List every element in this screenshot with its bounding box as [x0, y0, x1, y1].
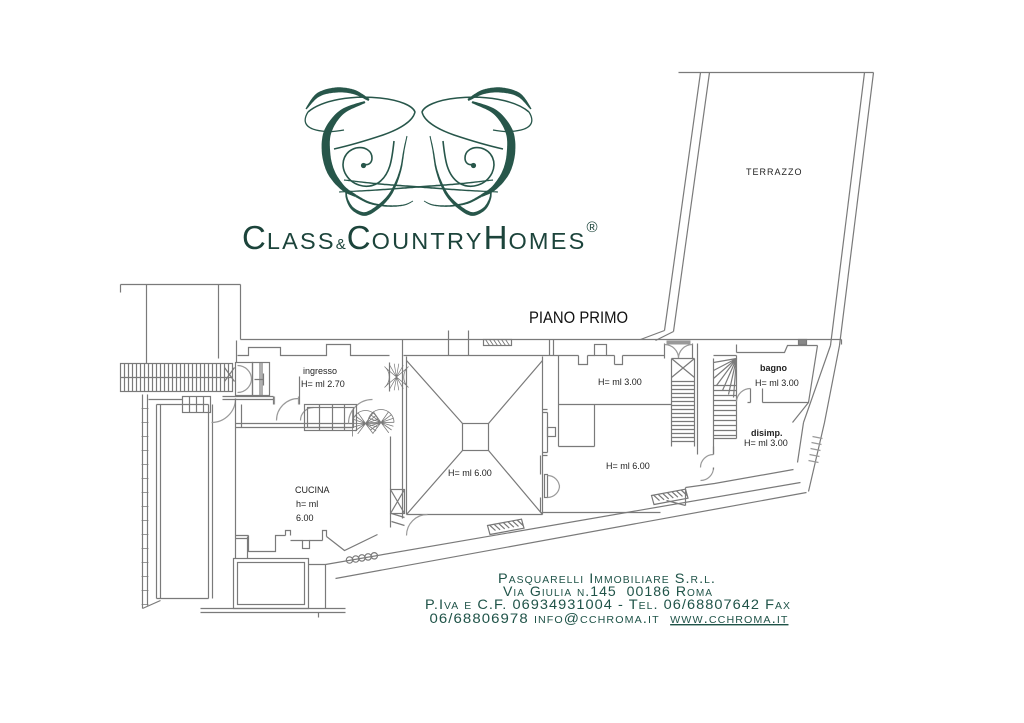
- svg-text:CUCINA: CUCINA: [295, 485, 330, 495]
- svg-text:H= ml 6.00: H= ml 6.00: [448, 468, 492, 478]
- svg-text:bagno: bagno: [760, 363, 787, 373]
- svg-text:TERRAZZO: TERRAZZO: [746, 167, 803, 177]
- svg-text:H= ml 3.00: H= ml 3.00: [744, 438, 788, 448]
- svg-text:6.00: 6.00: [296, 513, 314, 523]
- svg-text:CLASS&COUNTRYHOMES®: CLASS&COUNTRYHOMES®: [242, 219, 599, 256]
- svg-text:H= ml 3.00: H= ml 3.00: [755, 378, 799, 388]
- svg-text:H= ml 3.00: H= ml 3.00: [598, 377, 642, 387]
- svg-text:h= ml: h= ml: [296, 499, 318, 509]
- svg-text:PIANO PRIMO: PIANO PRIMO: [529, 308, 628, 327]
- svg-text:06/68806978 info@cchroma.it w: 06/68806978 info@cchroma.it www.cchroma.…: [430, 610, 789, 626]
- svg-text:H= ml 6.00: H= ml 6.00: [606, 461, 650, 471]
- svg-text:disimp.: disimp.: [751, 428, 783, 438]
- svg-text:ingresso: ingresso: [303, 366, 337, 376]
- svg-text:H= ml 2.70: H= ml 2.70: [301, 379, 345, 389]
